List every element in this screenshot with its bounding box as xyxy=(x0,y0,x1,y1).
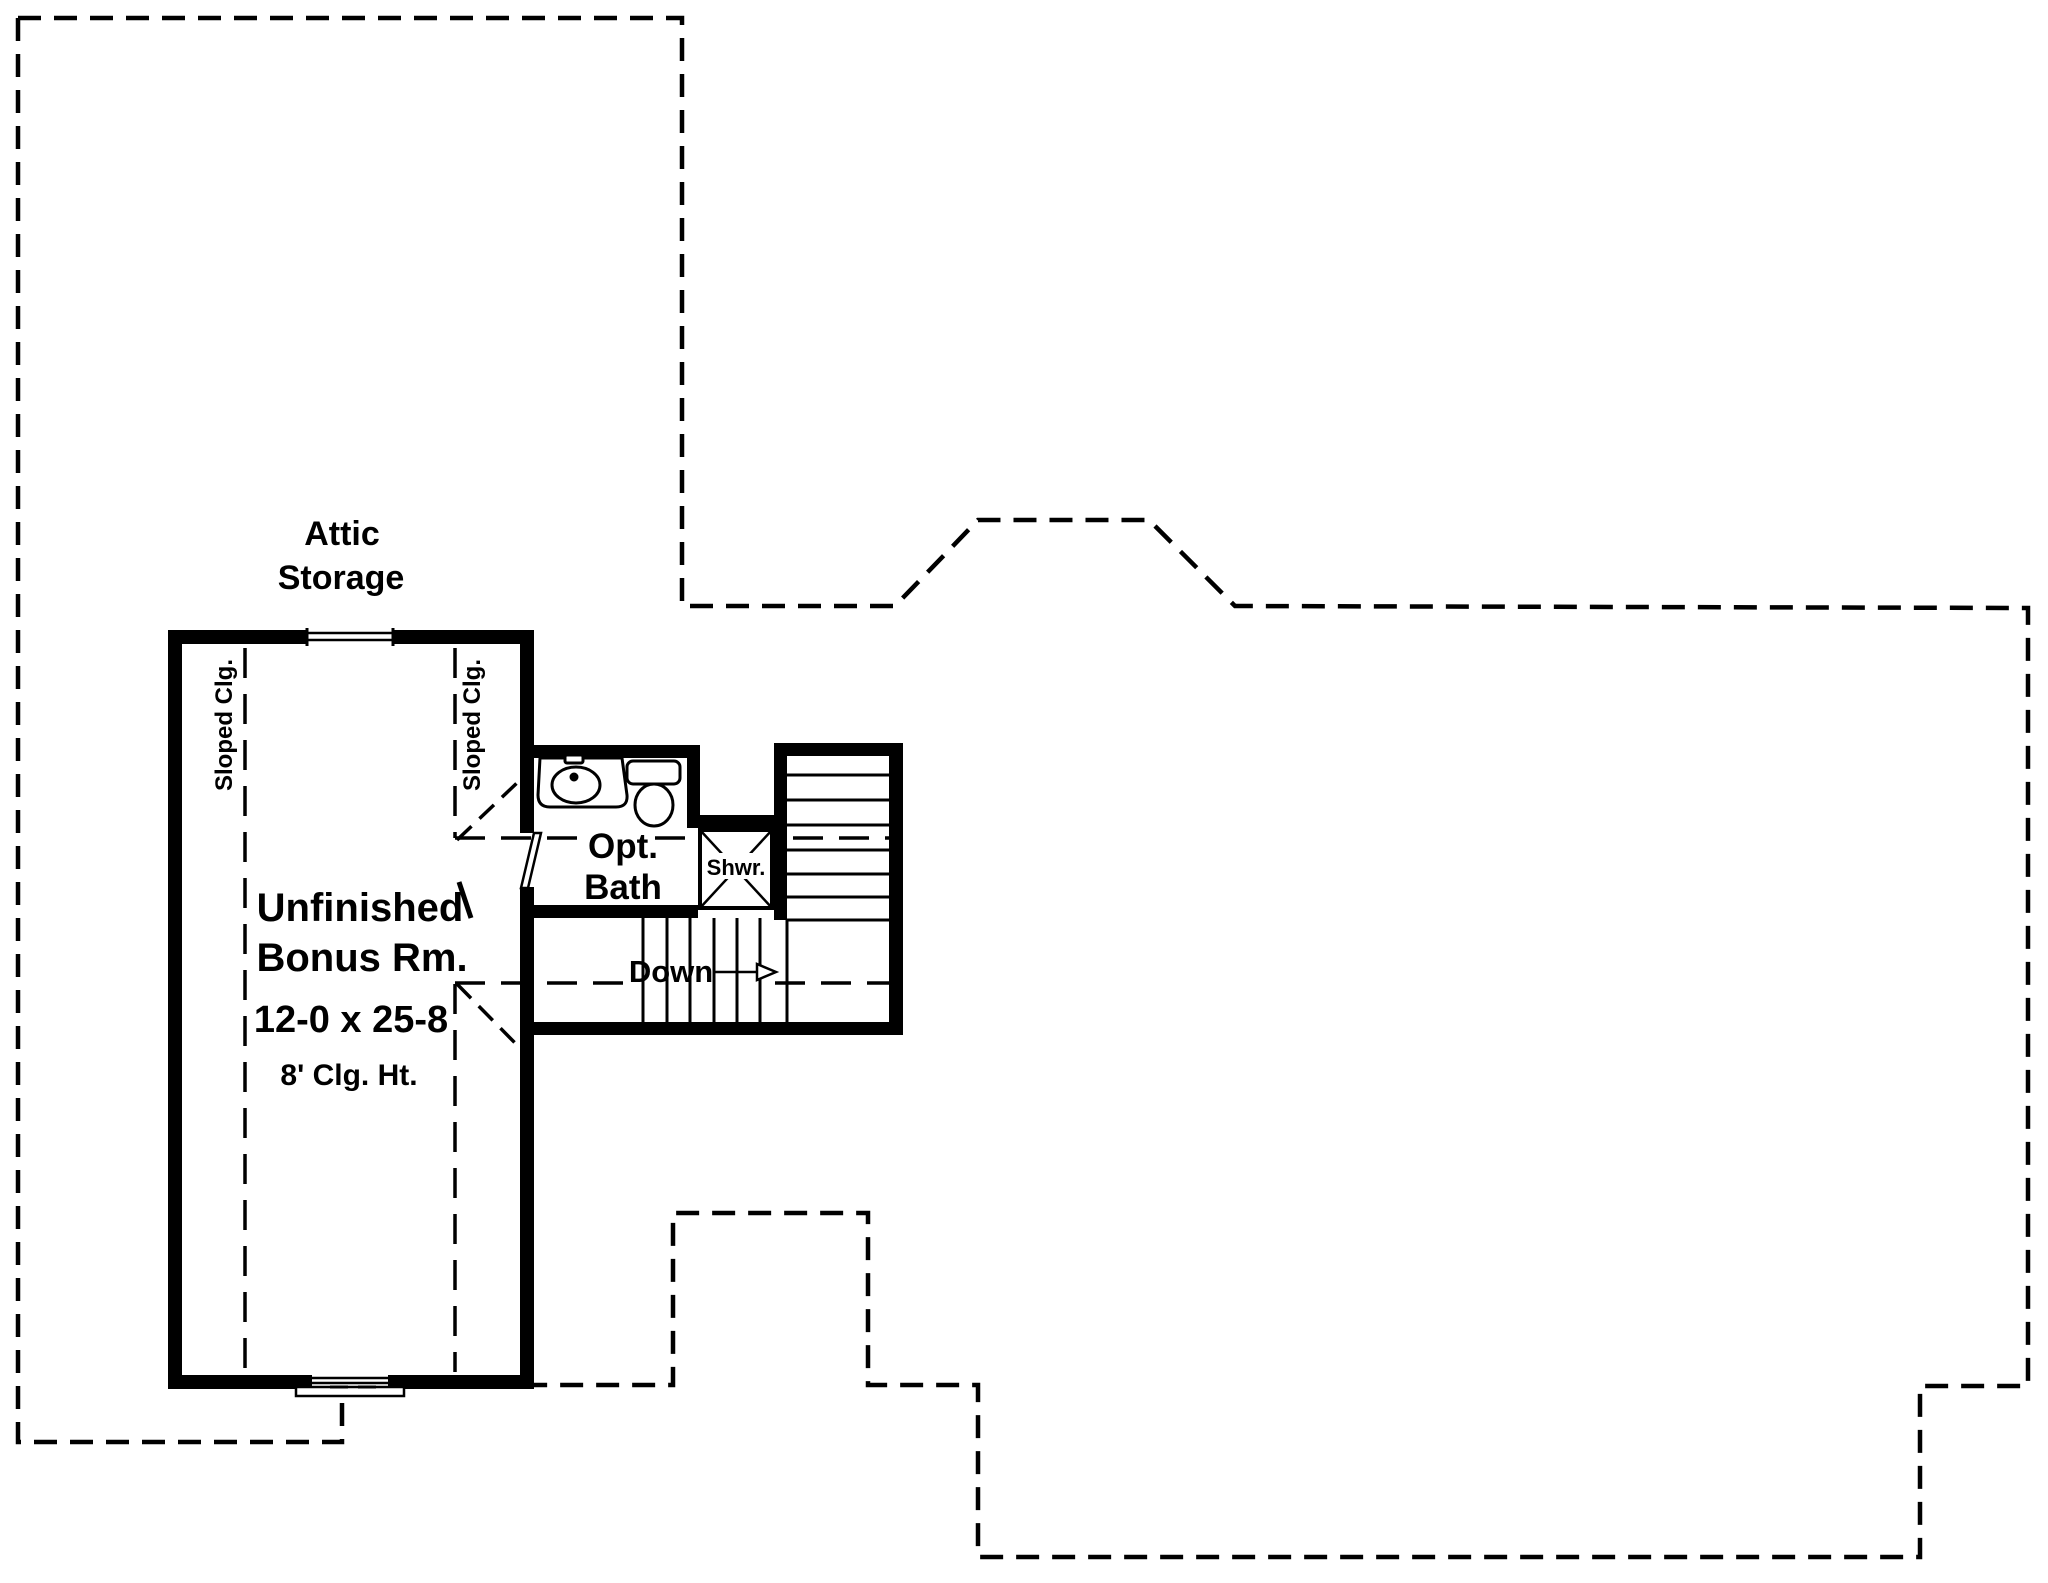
attic-window-gap xyxy=(307,628,393,646)
window-jamb-right xyxy=(388,1375,397,1386)
stair-wall-right xyxy=(889,743,903,1035)
bonus-room-label-line1: Unfinished xyxy=(257,886,464,930)
bath-label-line2: Bath xyxy=(584,868,662,907)
floor-plan: Shwr. Attic Storage Sloped Clg. Sloped C… xyxy=(0,0,2048,1583)
attic-label-line1: Attic xyxy=(304,515,380,553)
stairs-down-label: Down xyxy=(629,954,713,989)
stair-wall-left xyxy=(774,743,787,920)
floor-plan-canvas: Shwr. Attic Storage Sloped Clg. Sloped C… xyxy=(0,0,2048,1583)
sloped-clg-label-right: Sloped Clg. xyxy=(459,659,486,791)
sink-faucet xyxy=(565,755,583,763)
shower-wall-top xyxy=(687,815,787,828)
bath-label-line1: Opt. xyxy=(588,827,658,866)
wall-right-upper xyxy=(520,630,534,833)
shower: Shwr. xyxy=(700,830,772,908)
bath-wall-top xyxy=(520,745,700,758)
window-jamb-left xyxy=(303,1375,312,1386)
window-sill xyxy=(296,1387,404,1396)
attic-label-line2: Storage xyxy=(278,559,405,597)
bonus-room-label-line2: Bonus Rm. xyxy=(256,936,467,980)
stair-wall-bottom xyxy=(520,1022,903,1035)
stair-wall-top xyxy=(774,743,903,756)
sink-basin xyxy=(552,767,600,803)
bonus-room-window xyxy=(296,1374,404,1396)
sloped-clg-label-left: Sloped Clg. xyxy=(211,659,238,791)
plan-background xyxy=(0,0,2048,1583)
toilet-bowl xyxy=(635,784,673,826)
sink xyxy=(538,755,627,807)
attic-window xyxy=(307,628,393,646)
wall-left xyxy=(168,630,182,1389)
bonus-room-dimensions: 12-0 x 25-8 xyxy=(254,999,448,1041)
toilet-tank xyxy=(627,761,680,784)
sink-drain xyxy=(571,774,577,780)
wall-right-lower xyxy=(520,887,534,1389)
bonus-room-ceiling-height: 8' Clg. Ht. xyxy=(280,1059,417,1092)
shower-label: Shwr. xyxy=(707,855,766,880)
